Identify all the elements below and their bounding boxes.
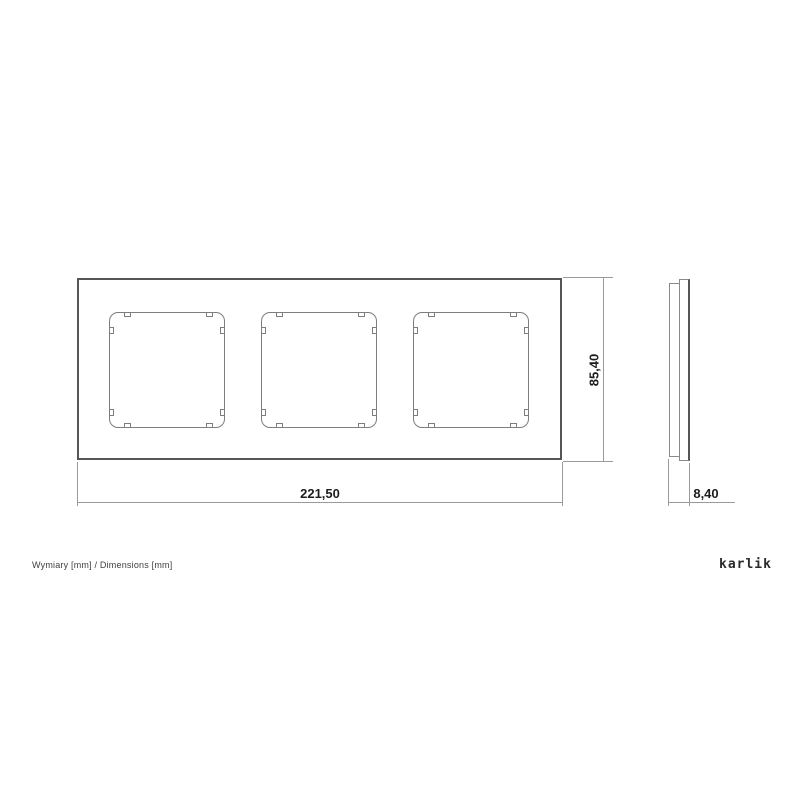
frame-front-view [77, 278, 562, 460]
mount-tab [124, 312, 131, 317]
mount-tab [109, 409, 114, 416]
mount-tab [109, 327, 114, 334]
mount-tab [124, 423, 131, 428]
dimension-value-width: 221,50 [77, 486, 563, 501]
dimension-line-width [77, 502, 563, 503]
mount-tab [206, 312, 213, 317]
mount-tab [524, 409, 529, 416]
frame-opening-1 [109, 312, 225, 428]
mount-tab [358, 312, 365, 317]
mount-tab [372, 327, 377, 334]
mount-tab [428, 312, 435, 317]
mount-tab [358, 423, 365, 428]
mount-tab [510, 312, 517, 317]
units-caption: Wymiary [mm] / Dimensions [mm] [32, 560, 172, 570]
mount-tab [220, 409, 225, 416]
extension-line-height-top [563, 277, 613, 278]
mount-tab [276, 423, 283, 428]
frame-opening-3 [413, 312, 529, 428]
mount-tab [428, 423, 435, 428]
mount-tab [510, 423, 517, 428]
mount-tab [220, 327, 225, 334]
karlik-logo: karlik [719, 557, 772, 572]
mount-tab [261, 409, 266, 416]
technical-drawing-canvas: 85,40 221,50 8,40 Wymiary [mm] / Dimensi… [0, 0, 800, 800]
mount-tab [524, 327, 529, 334]
extension-line-depth-left [668, 459, 669, 506]
mount-tab [261, 327, 266, 334]
frame-opening-2 [261, 312, 377, 428]
mount-tab [206, 423, 213, 428]
frame-side-view-front-profile [679, 279, 690, 461]
mount-tab [413, 327, 418, 334]
dimension-value-depth: 8,40 [678, 486, 734, 501]
dimension-line-depth [668, 502, 735, 503]
extension-line-height-bottom [563, 461, 613, 462]
mount-tab [276, 312, 283, 317]
mount-tab [413, 409, 418, 416]
mount-tab [372, 409, 377, 416]
dimension-value-height: 85,40 [587, 354, 602, 387]
dimension-line-height [603, 277, 604, 462]
